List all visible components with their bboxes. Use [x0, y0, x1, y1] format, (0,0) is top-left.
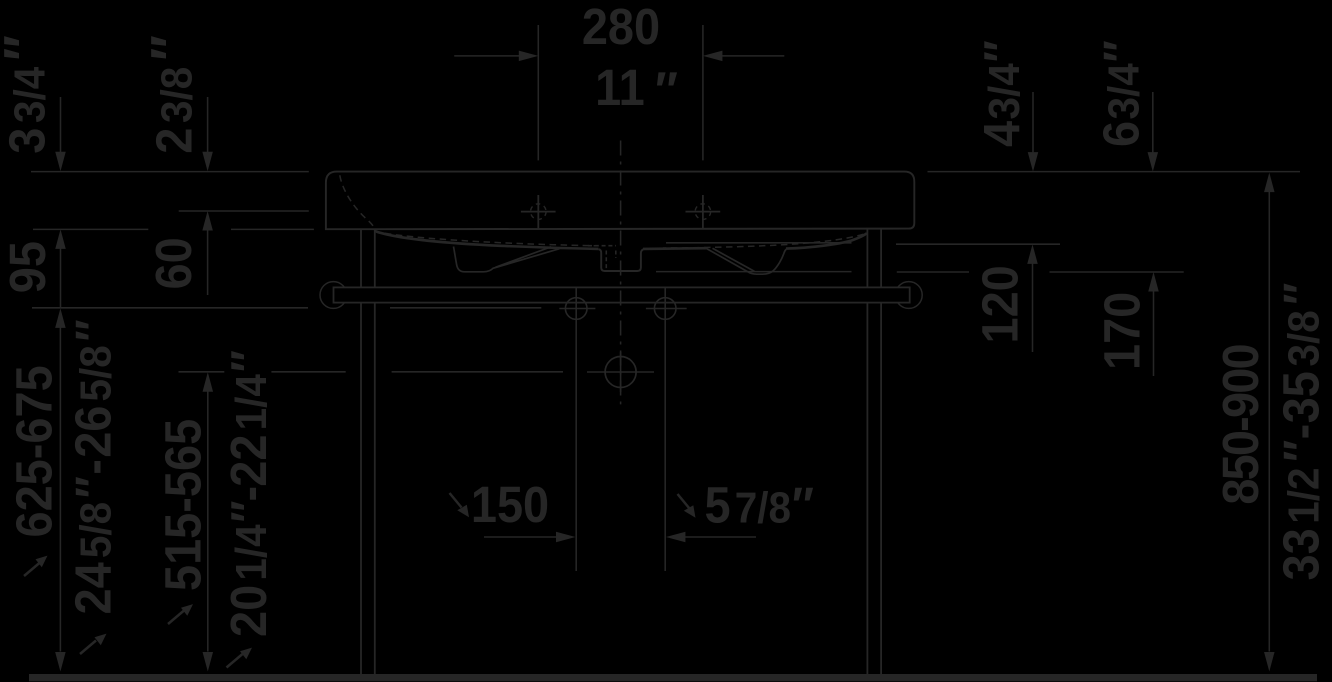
svg-text:43/4″: 43/4″ — [974, 40, 1030, 147]
svg-text:280: 280 — [582, 0, 660, 55]
svg-text:95: 95 — [0, 241, 56, 293]
svg-text:63/4″: 63/4″ — [1094, 40, 1150, 147]
svg-text:120: 120 — [973, 265, 1029, 343]
svg-text:33/4″: 33/4″ — [0, 35, 57, 154]
svg-text:245/8″-265/8″: 245/8″-265/8″ — [66, 319, 122, 614]
svg-text:170: 170 — [1095, 292, 1151, 370]
svg-text:60: 60 — [146, 237, 202, 289]
svg-text:23/8″: 23/8″ — [140, 35, 205, 154]
svg-text:850-900: 850-900 — [1213, 345, 1269, 505]
svg-text:11: 11 — [595, 60, 645, 116]
svg-text:515-565: 515-565 — [156, 419, 212, 591]
svg-text:625-675: 625-675 — [7, 365, 63, 537]
svg-text:331/2″-353/8″: 331/2″-353/8″ — [1274, 283, 1330, 581]
svg-text:150: 150 — [471, 477, 549, 533]
svg-text:57/8″: 57/8″ — [704, 478, 813, 534]
svg-text:″: ″ — [655, 61, 678, 119]
svg-text:201/4″-221/4″: 201/4″-221/4″ — [221, 350, 277, 637]
